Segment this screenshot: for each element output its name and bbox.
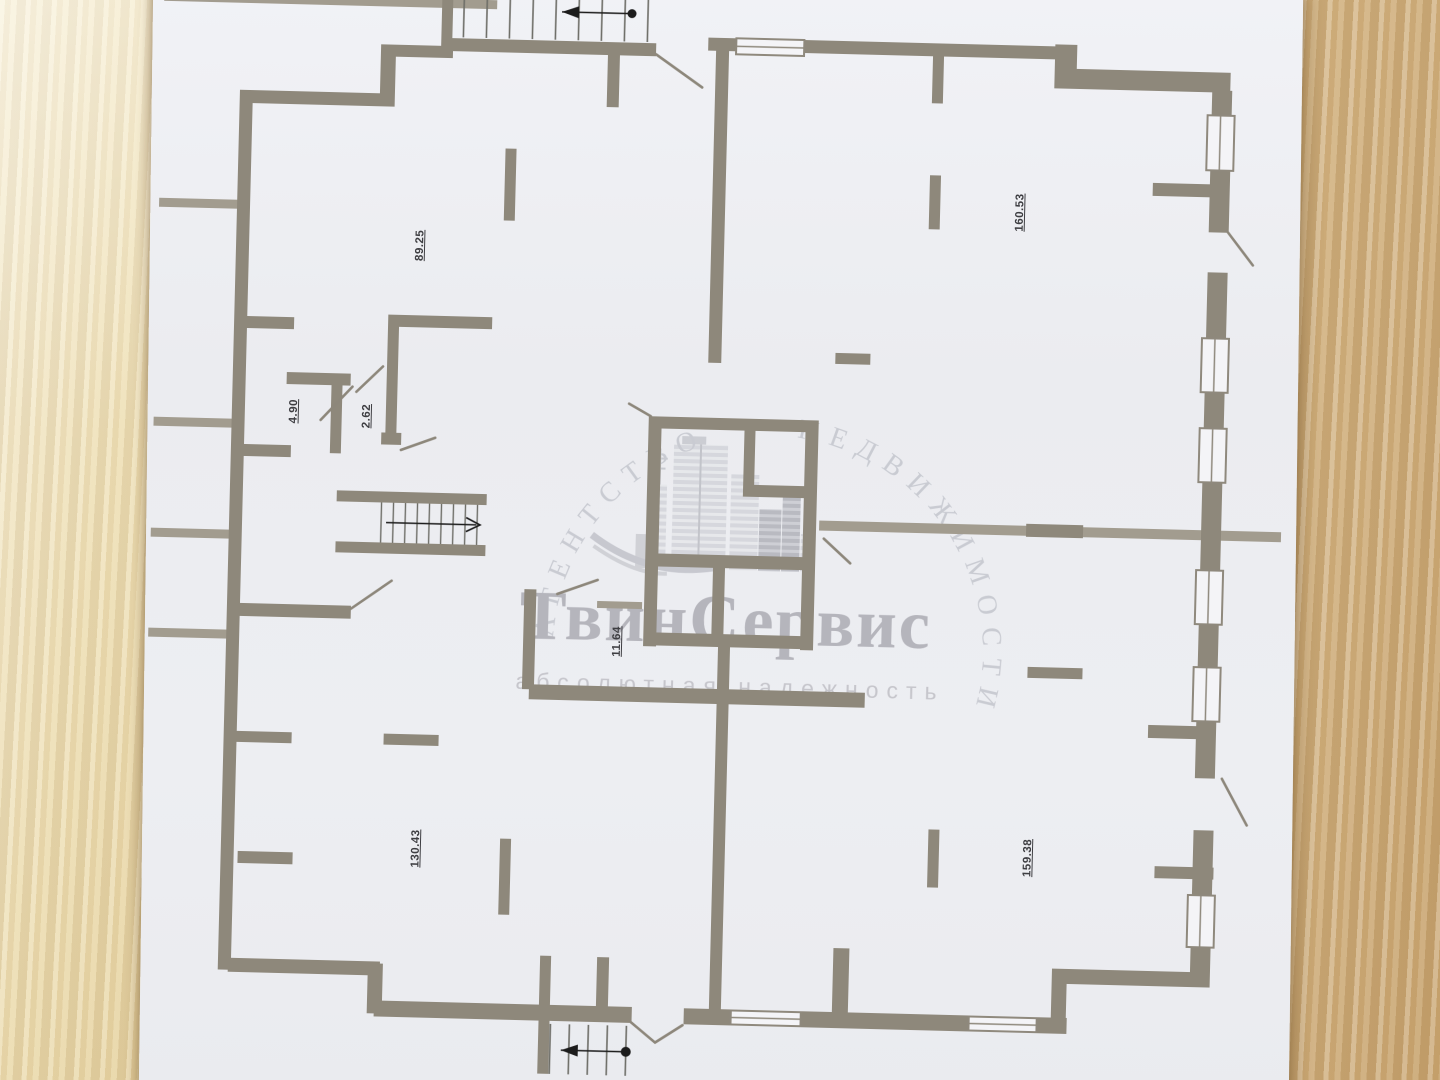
stair-bottom	[549, 1024, 626, 1076]
floor-plan-drawing: АГЕНТСТВО НЕДВИЖИМОСТИ ТвинСервис абсолю…	[132, 0, 1299, 1080]
stair-middle-arrow	[386, 516, 480, 532]
stair-bottom-arrow	[561, 1044, 631, 1058]
room-area-label: 11.64	[611, 626, 624, 657]
room-area-label: 2.62	[360, 404, 373, 429]
room-area-label: 130.43	[409, 829, 422, 867]
paper-sheet: АГЕНТСТВО НЕДВИЖИМОСТИ ТвинСервис абсолю…	[139, 0, 1303, 1080]
floor-plan: АГЕНТСТВО НЕДВИЖИМОСТИ ТвинСервис абсолю…	[132, 0, 1299, 1080]
room-area-label: 89.25	[414, 230, 427, 262]
photo-scene: АГЕНТСТВО НЕДВИЖИМОСТИ ТвинСервис абсолю…	[0, 0, 1440, 1080]
room-area-label: 159.38	[1021, 839, 1034, 877]
room-area-label: 160.53	[1014, 193, 1027, 231]
room-area-label: 4.90	[288, 399, 301, 424]
